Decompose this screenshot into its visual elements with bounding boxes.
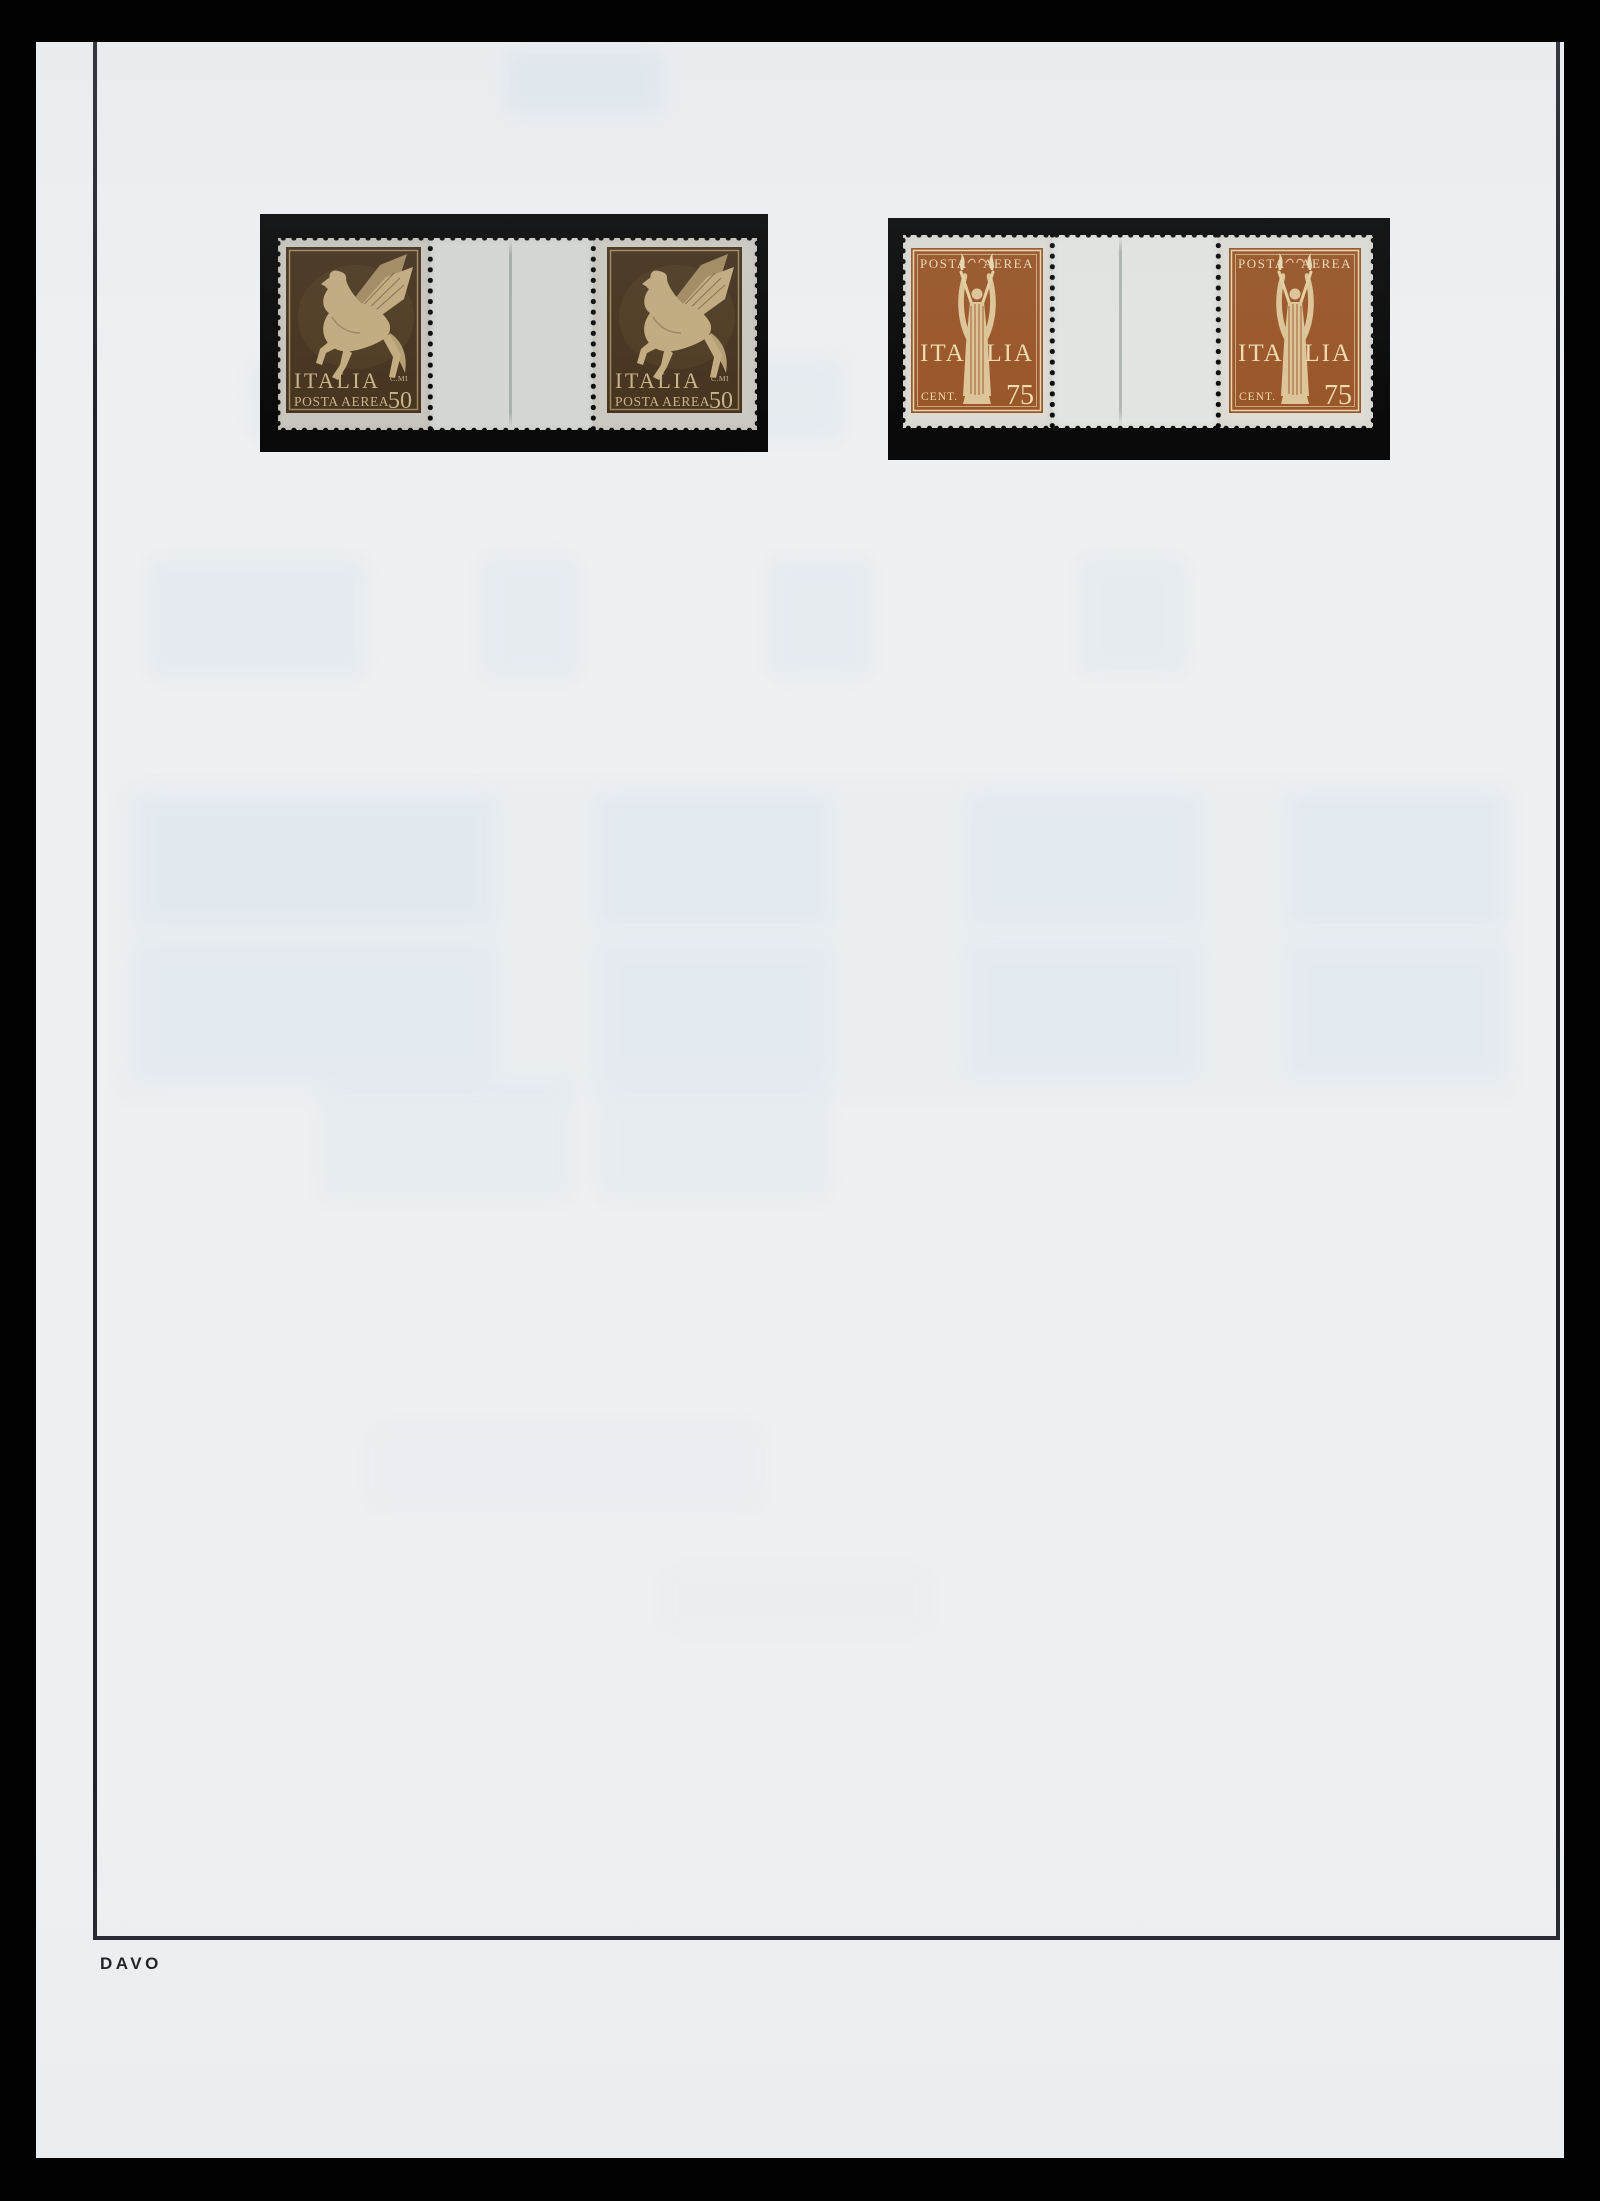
stamp-75c-victory-illustration: POSTA AEREA ITA LIA CENT. 75 — [911, 248, 1043, 413]
svg-text:POSTA AEREA: POSTA AEREA — [294, 394, 389, 409]
svg-text:AEREA: AEREA — [1301, 256, 1352, 271]
svg-text:AEREA: AEREA — [983, 256, 1034, 271]
svg-text:75: 75 — [1324, 380, 1352, 411]
scanned-album-page: ITALIA C.MI POSTA AEREA 50 — [0, 0, 1600, 2201]
gutter-75c — [1052, 235, 1218, 428]
svg-text:50: 50 — [709, 388, 733, 413]
stamp-50c-pegasus-illustration: ITALIA C.MI POSTA AEREA 50 — [286, 247, 421, 413]
svg-text:ITALIA: ITALIA — [615, 368, 702, 393]
svg-text:ITALIA: ITALIA — [294, 368, 381, 393]
svg-text:75: 75 — [1006, 380, 1034, 411]
svg-text:POSTA: POSTA — [1238, 256, 1286, 271]
gutter-crease — [509, 240, 512, 428]
svg-text:C.MI: C.MI — [711, 374, 729, 383]
stamp-50c-pegasus-illustration: ITALIA C.MI POSTA AEREA 50 — [607, 247, 742, 413]
svg-text:ITA: ITA — [920, 340, 966, 367]
svg-text:LIA: LIA — [1304, 340, 1352, 367]
stamp-75c-victory-illustration: POSTA AEREA ITA LIA CENT. 75 — [1229, 248, 1361, 413]
svg-text:50: 50 — [388, 388, 412, 413]
perforation-column — [588, 238, 599, 430]
svg-text:CENT.: CENT. — [921, 391, 958, 403]
perforation-column — [425, 238, 436, 430]
album-page: ITALIA C.MI POSTA AEREA 50 — [36, 42, 1564, 2158]
gutter-crease — [1119, 237, 1122, 426]
perforation-column — [1213, 235, 1224, 428]
perforation-column — [1047, 235, 1058, 428]
gutter-pair-50c: ITALIA C.MI POSTA AEREA 50 — [278, 238, 757, 430]
gutter-pair-75c: POSTA AEREA ITA LIA CENT. 75 — [903, 235, 1373, 428]
stamp-mount-50c: ITALIA C.MI POSTA AEREA 50 — [260, 214, 768, 452]
stamp-mount-75c: POSTA AEREA ITA LIA CENT. 75 — [888, 218, 1390, 460]
svg-text:CENT.: CENT. — [1239, 391, 1276, 403]
brand-label: DAVO — [100, 1954, 162, 1974]
svg-text:POSTA AEREA: POSTA AEREA — [615, 394, 710, 409]
gutter-50c — [430, 238, 593, 430]
svg-text:C.MI: C.MI — [390, 374, 408, 383]
svg-text:ITA: ITA — [1238, 340, 1284, 367]
svg-text:POSTA: POSTA — [920, 256, 968, 271]
svg-text:LIA: LIA — [986, 340, 1034, 367]
